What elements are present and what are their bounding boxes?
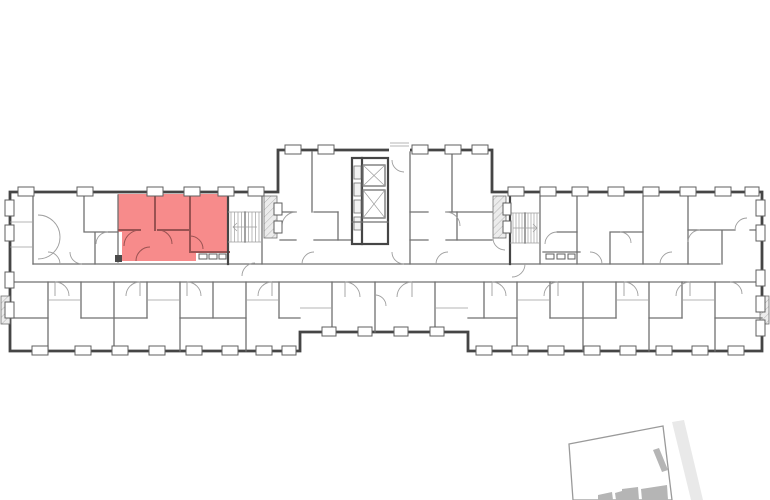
column-mark	[115, 255, 122, 262]
minimap-building-b	[615, 487, 639, 500]
highlighted-unit-area[interactable]	[118, 194, 229, 261]
floor-plan-page	[0, 0, 770, 500]
floor-plan-canvas	[0, 0, 770, 500]
highlighted-unit[interactable]	[118, 194, 229, 261]
minimap-building-c	[641, 485, 668, 500]
minimap-road	[672, 420, 703, 500]
minimap-building-a	[598, 492, 613, 500]
site-minimap	[569, 420, 703, 500]
